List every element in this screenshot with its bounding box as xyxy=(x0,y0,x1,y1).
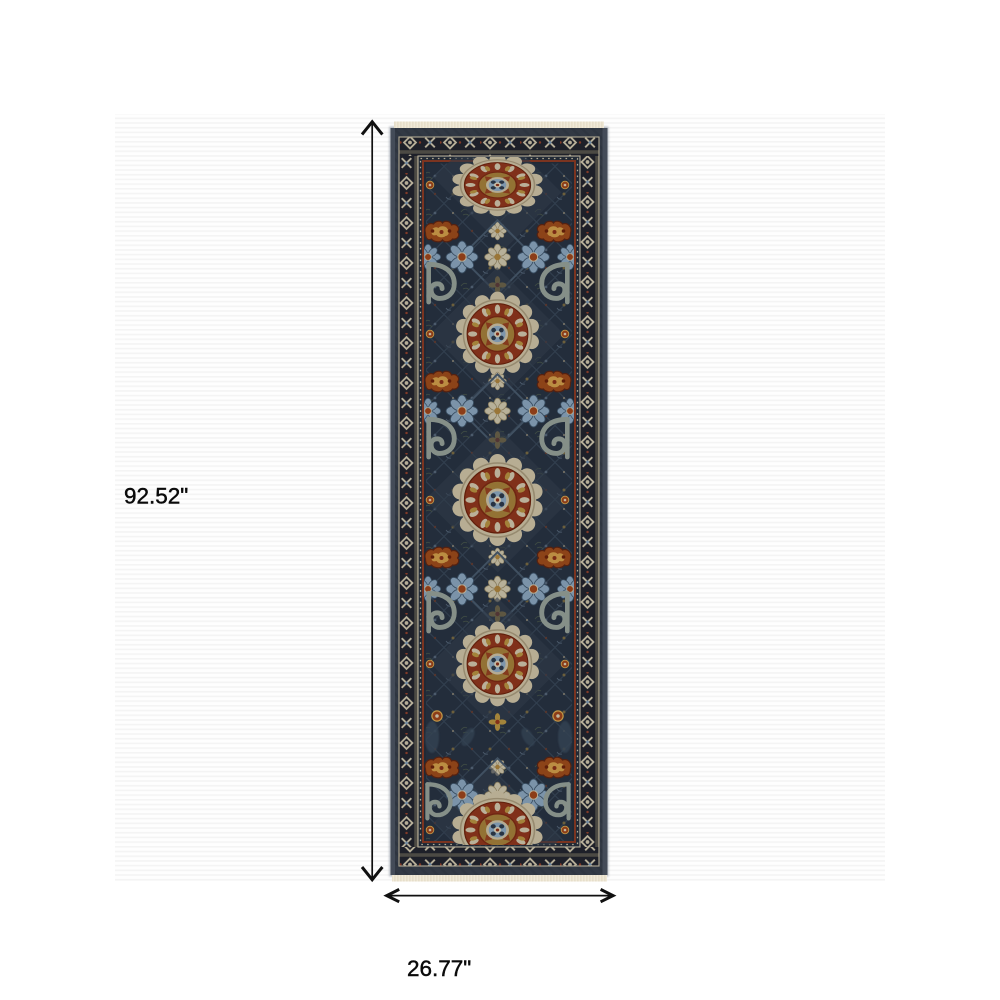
svg-text:92.52": 92.52" xyxy=(124,484,188,509)
svg-text:26.77": 26.77" xyxy=(407,956,471,981)
